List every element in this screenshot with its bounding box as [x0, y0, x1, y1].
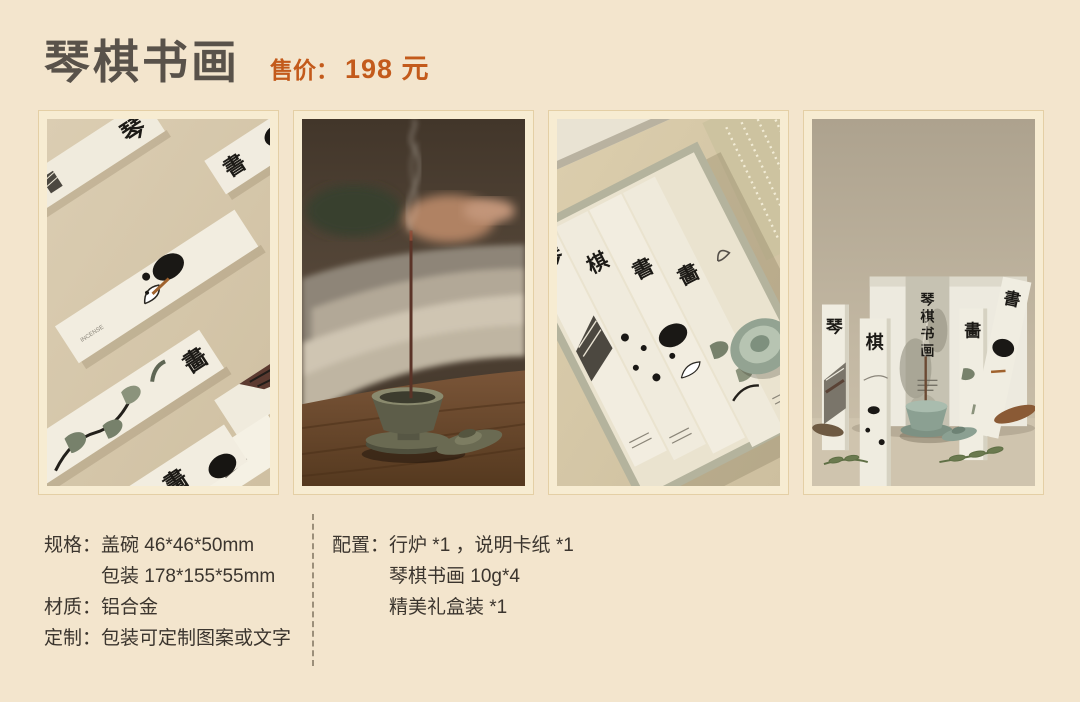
spec-label: 材质：	[44, 592, 101, 623]
contents-value: 行炉 *1 ，说明卡纸 *1	[389, 530, 574, 561]
spec-row-size: 规格： 盖碗 46*46*50mm	[44, 530, 291, 561]
contents-label: 配置：	[332, 530, 389, 561]
standing-char-qi: 棋	[866, 331, 884, 352]
finger-blur	[463, 199, 515, 223]
photo-frame-incense-scene	[293, 110, 534, 495]
price-value: 198 元	[345, 47, 430, 86]
standing-char-qin: 琴	[826, 317, 843, 336]
header: 琴棋书画 售价： 198 元	[44, 26, 430, 92]
photo-incense-scene-illustration	[302, 119, 525, 486]
page-title: 琴棋书画	[44, 26, 240, 92]
product-photo-gallery: 書 琴 INCENSE	[38, 110, 1044, 495]
spec-value: 盖碗 46*46*50mm	[101, 530, 254, 561]
contents-value: 琴棋书画 10g*4	[389, 561, 520, 592]
contents-row-1: 配置： 行炉 *1 ，说明卡纸 *1	[332, 530, 574, 561]
contents-row-2: 琴棋书画 10g*4	[332, 561, 574, 592]
contents-value: 精美礼盒装 *1	[389, 592, 507, 623]
contents-row-3: 精美礼盒装 *1	[332, 592, 574, 623]
spec-label: 定制：	[44, 623, 101, 654]
photo-open-box-illustration: 琴 棋 書 畵	[557, 119, 780, 486]
photo-frame-open-box: 琴 棋 書 畵	[548, 110, 789, 495]
standing-char-hua: 畵	[964, 320, 981, 340]
spec-value: 包装可定制图案或文字	[101, 623, 291, 654]
spec-value: 铝合金	[101, 592, 158, 623]
spec-value: 包装 178*155*55mm	[101, 561, 275, 592]
dashed-divider	[312, 514, 314, 666]
contents-block: 配置： 行炉 *1 ，说明卡纸 *1 琴棋书画 10g*4 精美礼盒装 *1	[332, 530, 574, 623]
spec-row-package-size: 包装 178*155*55mm	[44, 561, 291, 592]
photo-display-illustration: 琴棋书画 琴 棋	[812, 119, 1035, 486]
page-background: { "header": { "title": "琴棋书画", "price_la…	[0, 0, 1080, 702]
spec-block: 规格： 盖碗 46*46*50mm 包装 178*155*55mm 材质： 铝合…	[44, 530, 291, 654]
spec-row-material: 材质： 铝合金	[44, 592, 291, 623]
photo-frame-display: 琴棋书画 琴 棋	[803, 110, 1044, 495]
spec-row-customization: 定制： 包装可定制图案或文字	[44, 623, 291, 654]
incense-stick	[410, 231, 413, 399]
incense-ember	[410, 231, 413, 241]
price: 售价： 198 元	[270, 47, 430, 86]
photo-flatlay-illustration: 書 琴 INCENSE	[47, 119, 270, 486]
sleeve-blur	[306, 185, 402, 237]
photo-frame-flatlay: 書 琴 INCENSE	[38, 110, 279, 495]
spec-label: 规格：	[44, 530, 101, 561]
price-label: 售价：	[270, 51, 339, 85]
